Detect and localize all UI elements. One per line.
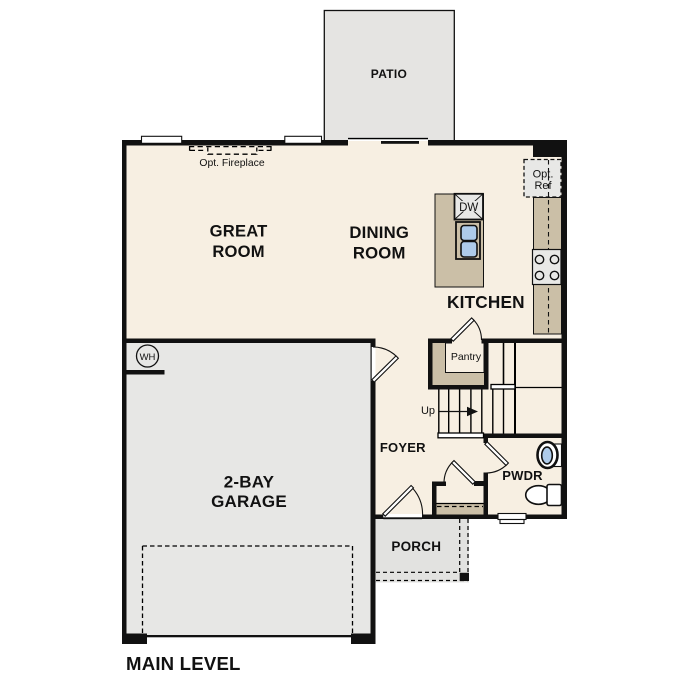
svg-text:DINING: DINING [349, 223, 409, 242]
svg-text:PORCH: PORCH [391, 539, 441, 554]
svg-text:GREAT: GREAT [210, 221, 268, 240]
svg-text:Ref: Ref [534, 180, 552, 192]
svg-text:GARAGE: GARAGE [211, 492, 287, 511]
svg-text:PATIO: PATIO [371, 67, 407, 81]
svg-text:KITCHEN: KITCHEN [447, 292, 525, 312]
svg-text:WH: WH [140, 352, 156, 363]
svg-text:ROOM: ROOM [212, 242, 264, 261]
svg-text:2-BAY: 2-BAY [224, 472, 275, 491]
svg-text:FOYER: FOYER [380, 440, 426, 455]
svg-text:DW: DW [459, 202, 478, 214]
svg-text:Opt.: Opt. [533, 169, 554, 181]
svg-text:ROOM: ROOM [353, 244, 406, 263]
svg-text:MAIN LEVEL: MAIN LEVEL [126, 653, 241, 674]
svg-text:Opt. Fireplace: Opt. Fireplace [199, 158, 264, 169]
svg-text:PWDR: PWDR [502, 468, 543, 483]
svg-text:Up: Up [421, 405, 435, 417]
svg-text:Pantry: Pantry [451, 351, 482, 363]
